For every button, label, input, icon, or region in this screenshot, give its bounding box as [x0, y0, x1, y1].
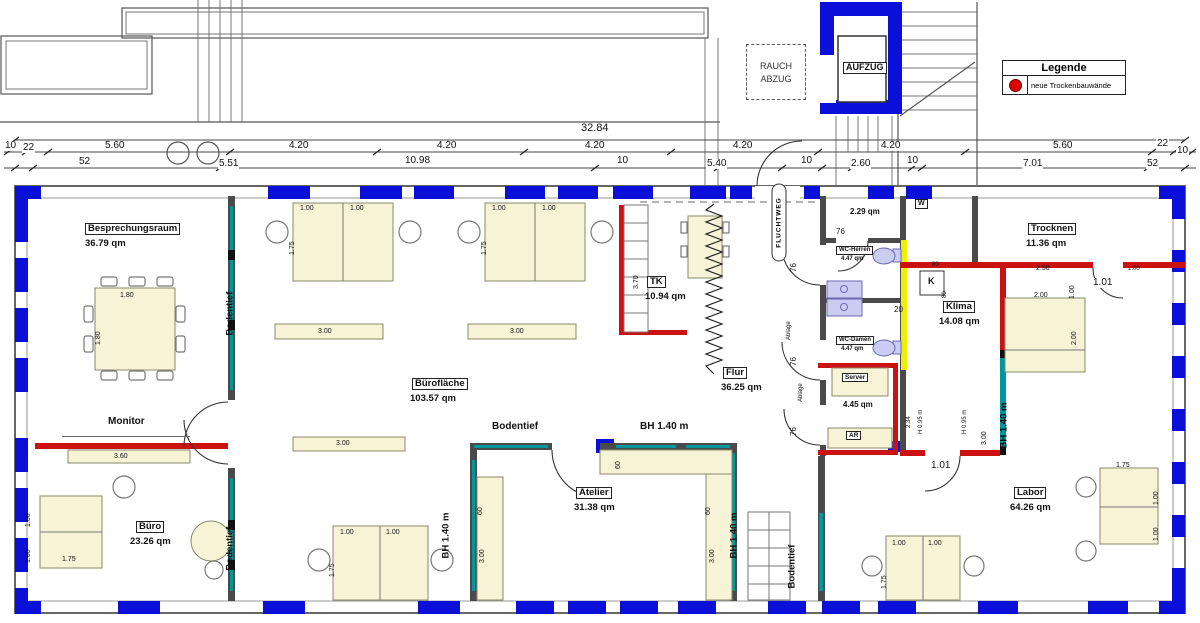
fdim: 3.70 [633, 275, 640, 289]
room-area-vorraum: 2.29 qm [850, 208, 880, 217]
room-label-wc-herren: WC-Herren [836, 246, 873, 255]
fdim: 1.00 [492, 205, 506, 212]
room-area: 103.57 qm [410, 394, 456, 404]
washer-label: W [915, 199, 928, 209]
fdim: 1.75 [1116, 462, 1130, 469]
storage-shelf [748, 512, 790, 600]
dim: 52 [1146, 159, 1159, 169]
rauchabzug-box: RAUCH ABZUG [746, 44, 806, 100]
dim: 5.60 [1052, 141, 1073, 151]
small-table [681, 216, 729, 278]
legend-item-label: neue Trockenbauwände [1028, 76, 1125, 94]
fdim: 60 [477, 507, 484, 515]
door-width: 76 [790, 357, 798, 366]
dim: 5.51 [218, 159, 239, 169]
bodentief-label: Bodentief [226, 527, 236, 571]
fdim: 1.00 [1069, 285, 1076, 299]
fdim: 1.00 [542, 205, 556, 212]
dim: 10 [4, 141, 17, 151]
bh140-label: BH 1.40 m [1000, 403, 1010, 449]
fdim: 60 [615, 461, 622, 469]
ablage-label: Ablage [798, 383, 804, 402]
fdim: 1.00 [25, 549, 32, 563]
fdim: 1.00 [340, 529, 354, 536]
fdim: 1.00 [386, 529, 400, 536]
fdim: 60 [705, 507, 712, 515]
fluchtweg-label: FLUCHTWEG [772, 184, 787, 262]
dim: 4.20 [436, 141, 457, 151]
fdim: 2.00 [1071, 331, 1078, 345]
fdim: 1.00 [350, 205, 364, 212]
room-area: 23.26 qm [130, 537, 171, 547]
fdim: 1.75 [881, 575, 888, 589]
dim-20: 20 [894, 306, 903, 314]
h095-label: H 0.95 m [918, 410, 924, 434]
dim-234: 2.34 [906, 416, 912, 428]
room-label-trocknen: Trocknen [1028, 223, 1076, 235]
fdim: 1.75 [481, 241, 488, 255]
bodentief-label: Bodentief [226, 292, 236, 336]
room-area: 4.47 qm [841, 256, 863, 263]
room-area: 11.36 qm [1026, 239, 1066, 249]
room-label-tk: TK [647, 276, 666, 288]
fdim: 1.80 [120, 292, 134, 299]
room-label-bueroflaeche: Bürofläche [412, 378, 468, 390]
fdim: 1.00 [25, 513, 32, 527]
door-width: 76 [790, 427, 798, 436]
dim: 7.01 [1022, 159, 1043, 169]
fdim: 1.75 [329, 563, 336, 577]
bodentief-label: Bodentief [492, 421, 538, 432]
legend-dot-icon [1003, 76, 1028, 94]
room-area: 36.25 qm [721, 383, 762, 393]
counter [477, 477, 503, 600]
outer-walls [15, 186, 1185, 613]
chair [205, 561, 223, 579]
bh140-label: BH 1.40 m [730, 513, 740, 559]
dim: 2.60 [850, 159, 871, 169]
ablage-label: Ablage [786, 321, 792, 340]
room-label-server: Server [842, 373, 868, 382]
column-circle [167, 142, 189, 164]
tk-shelf [624, 205, 648, 332]
dim-overall: 32.84 [580, 123, 610, 134]
dim: 4.20 [732, 141, 753, 151]
room-label-wc-damen: WC-Damen [836, 336, 874, 345]
aufzug-label: AUFZUG [843, 62, 887, 74]
existing-building [0, 0, 720, 186]
room-area: 36.79 qm [85, 239, 126, 249]
fdim: 2.00 [1034, 292, 1048, 299]
fdim: 1.75 [62, 556, 76, 563]
room-label-flur: Flur [723, 367, 747, 379]
room-label-besprechungsraum: Besprechungsraum [85, 223, 180, 235]
k-label: K [928, 277, 935, 287]
room-area: 14.08 qm [939, 317, 980, 327]
dim: 22 [1156, 139, 1169, 149]
sink-icon [827, 281, 862, 298]
fdim: 3.00 [510, 328, 524, 335]
room-area: 10.94 qm [645, 292, 686, 302]
monitor-label: Monitor [108, 416, 145, 427]
legend: Legende neue Trockenbauwände [1002, 60, 1126, 95]
toilet-icon [873, 340, 895, 356]
toilet-icon [873, 248, 895, 264]
door-width: 1.01 [930, 461, 951, 471]
fdim: 80 [942, 291, 948, 298]
floor-plan: Legende neue Trockenbauwände RAUCH ABZUG… [0, 0, 1200, 623]
rauchabzug-line2: ABZUG [760, 74, 791, 84]
dim: 4.20 [584, 141, 605, 151]
bh140-label: BH 1.40 m [640, 421, 688, 432]
room-label-buero: Büro [136, 521, 164, 533]
rauchabzug-line1: RAUCH [760, 61, 792, 71]
dim-300: 3.00 [981, 431, 988, 445]
fdim: 3.60 [114, 453, 128, 460]
fdim: 3.00 [336, 440, 350, 447]
dim: 10 [1176, 146, 1189, 156]
ar-label: AR [846, 431, 861, 440]
sideboard [68, 450, 190, 463]
fdim: 1.00 [892, 540, 906, 547]
conference-table [84, 277, 185, 380]
fdim: 1.00 [300, 205, 314, 212]
dim: 4.20 [288, 141, 309, 151]
fdim: 1.00 [1153, 491, 1160, 505]
room-area: 4.45 qm [843, 401, 873, 410]
room-label-klima: Klima [943, 301, 975, 313]
room-label-labor: Labor [1014, 487, 1046, 499]
bh140-label: BH 1.40 m [442, 513, 452, 559]
door-width: 1.01 [1092, 278, 1113, 288]
fdim: 1.00 [928, 540, 942, 547]
column-circle [197, 142, 219, 164]
room-label-atelier: Atelier [576, 487, 612, 499]
fdim: 3.00 [479, 549, 486, 563]
sink-icon [827, 299, 862, 316]
legend-title: Legende [1002, 60, 1126, 76]
dim: 5.40 [706, 159, 727, 169]
fdim: 2.50 [1036, 265, 1050, 272]
fdim: 3.00 [709, 549, 716, 563]
elevator-shaft [816, 2, 902, 114]
monitor-underline [62, 436, 190, 437]
fdim: 1.80 [95, 331, 102, 345]
dim: 52 [78, 157, 91, 167]
h095-label: H 0.95 m [962, 410, 968, 434]
dim: 5.60 [104, 141, 125, 151]
fdim: 3.00 [318, 328, 332, 335]
dim: 10 [616, 156, 629, 166]
room-area: 4.47 qm [841, 346, 863, 353]
dim-100: 1.00 [1128, 266, 1140, 272]
dim: 10 [906, 156, 919, 166]
dim: 10 [800, 156, 813, 166]
fdim: 1.00 [1153, 527, 1160, 541]
room-area: 64.26 qm [1010, 503, 1051, 513]
door-width: 76 [790, 263, 798, 272]
fdim: 1.75 [289, 241, 296, 255]
dim: 10.98 [404, 156, 431, 166]
dim: 22 [22, 143, 35, 153]
room-area: 31.38 qm [574, 503, 615, 513]
door-width: 76 [836, 228, 845, 236]
dim: 4.20 [880, 141, 901, 151]
bodentief-label: Bodentief [788, 545, 798, 589]
fdim: 80 [932, 262, 939, 268]
